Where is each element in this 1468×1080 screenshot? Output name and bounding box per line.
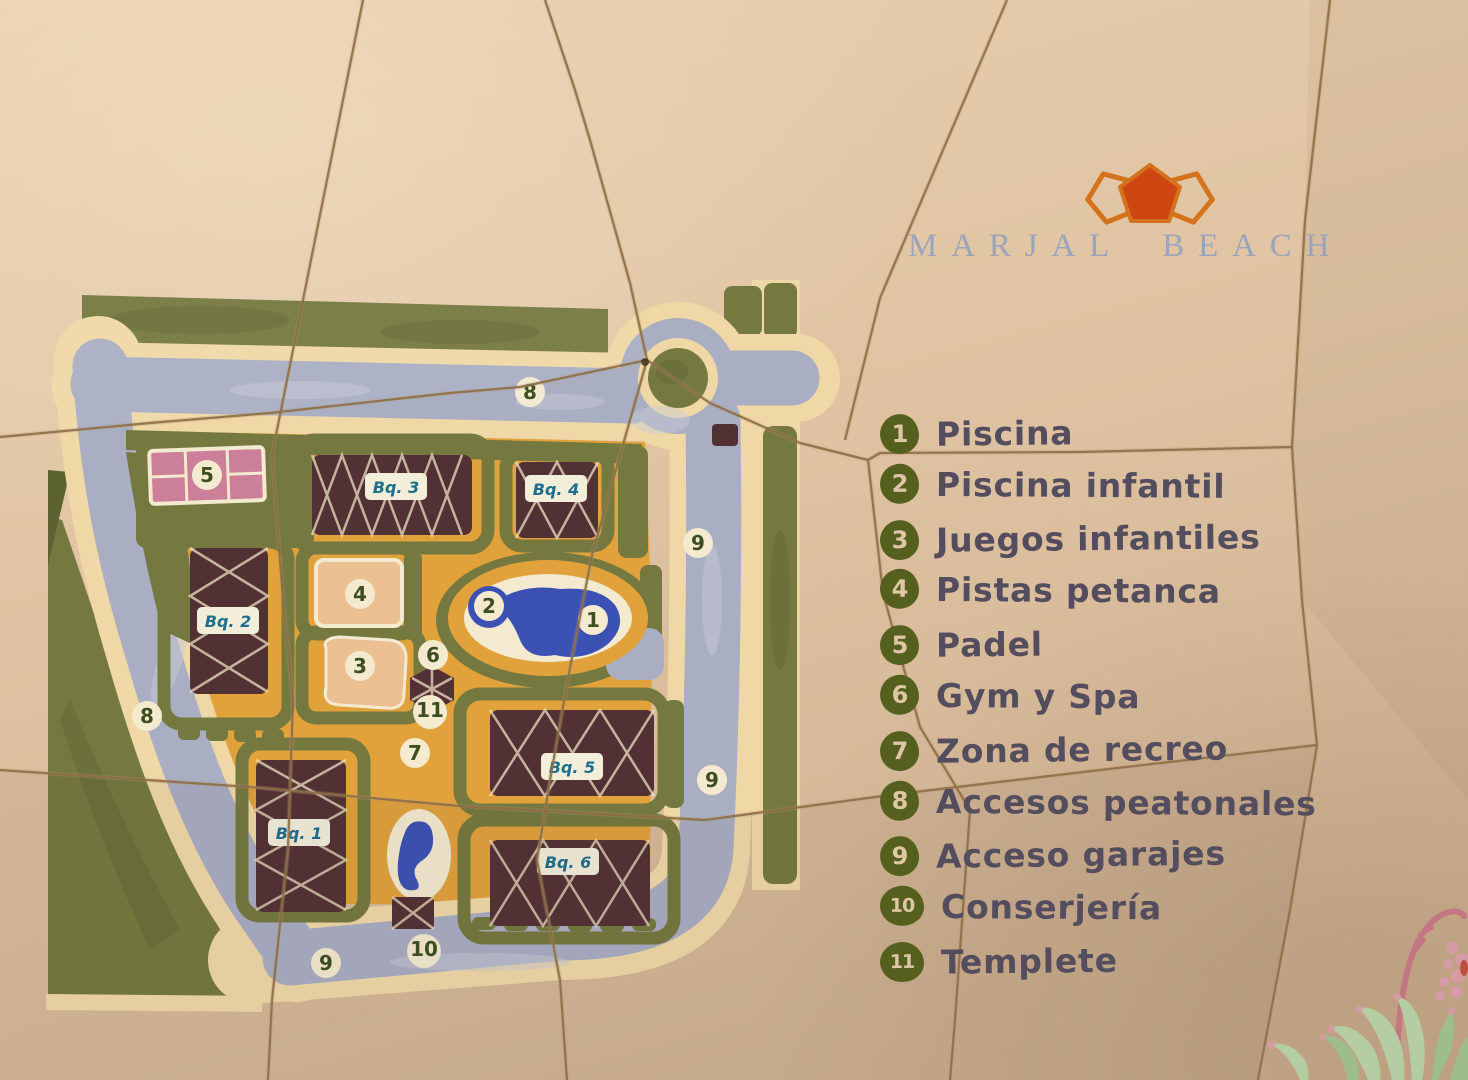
- tiled-sign-photo: Bq. 2Bq. 3Bq. 4Bq. 1Bq. 5Bq. 6 123456788…: [0, 0, 1468, 1080]
- legend-number-badge: 9: [880, 837, 919, 877]
- map-pool: [448, 560, 648, 676]
- legend-item-4: 4Pistas petanca: [880, 563, 1317, 618]
- legend-item-11: 11Templete: [880, 932, 1317, 989]
- legend-item-1: 1Piscina: [880, 404, 1317, 461]
- legend-label: Pistas petanca: [936, 570, 1221, 611]
- legend-number-badge: 10: [880, 886, 924, 926]
- map-marker-number: 9: [705, 768, 719, 792]
- legend-number-badge: 8: [880, 781, 919, 821]
- map-marker-number: 2: [482, 594, 496, 618]
- legend-label: Padel: [936, 625, 1043, 665]
- legend-label: Accesos peatonales: [936, 781, 1317, 822]
- legend-label: Acceso garajes: [936, 834, 1226, 876]
- legend-number-badge: 7: [880, 731, 919, 771]
- legend-item-6: 6Gym y Spa: [880, 669, 1317, 724]
- legend-item-9: 9Acceso garajes: [880, 826, 1317, 883]
- legend-number-badge: 1: [880, 414, 919, 454]
- legend: 1Piscina2Piscina infantil3Juegos infanti…: [880, 406, 1317, 987]
- map-marker-number: 7: [408, 741, 422, 765]
- brand-logo-crown-icon: [1081, 165, 1219, 226]
- legend-number-badge: 11: [880, 942, 924, 982]
- map-marker-number: 1: [586, 608, 600, 632]
- map-marker-number: 9: [691, 531, 705, 555]
- building-label-text: Bq. 4: [533, 480, 579, 499]
- legend-item-2: 2Piscina infantil: [880, 457, 1317, 512]
- building-label-text: Bq. 3: [373, 478, 419, 497]
- map-marker-number: 8: [140, 704, 154, 728]
- map-marker-number: 11: [416, 698, 444, 722]
- legend-item-3: 3Juegos infantiles: [880, 509, 1317, 566]
- legend-item-10: 10Conserjería: [880, 880, 1317, 935]
- legend-label: Templete: [941, 941, 1118, 982]
- legend-number-badge: 2: [880, 464, 919, 504]
- legend-number-badge: 6: [880, 675, 919, 715]
- building-label-text: Bq. 5: [549, 758, 595, 777]
- map-marker-number: 4: [353, 582, 367, 606]
- brand-name: MARJAL BEACH: [908, 228, 1408, 265]
- legend-item-5: 5Padel: [880, 615, 1317, 672]
- legend-number-badge: 4: [880, 569, 919, 609]
- legend-label: Zona de recreo: [936, 728, 1228, 770]
- legend-number-badge: 5: [880, 625, 919, 665]
- legend-number-badge: 3: [880, 520, 919, 560]
- legend-item-7: 7Zona de recreo: [880, 720, 1317, 777]
- legend-label: Gym y Spa: [936, 676, 1141, 716]
- legend-item-8: 8Accesos peatonales: [880, 774, 1317, 829]
- legend-label: Juegos infantiles: [936, 517, 1261, 559]
- map-marker-number: 6: [426, 643, 440, 667]
- legend-label: Piscina: [936, 413, 1074, 453]
- building-label-text: Bq. 2: [205, 612, 251, 631]
- legend-label: Piscina infantil: [936, 465, 1226, 506]
- map-marker-number: 3: [353, 654, 367, 678]
- map-marker-number: 5: [200, 463, 214, 487]
- legend-label: Conserjería: [941, 887, 1162, 927]
